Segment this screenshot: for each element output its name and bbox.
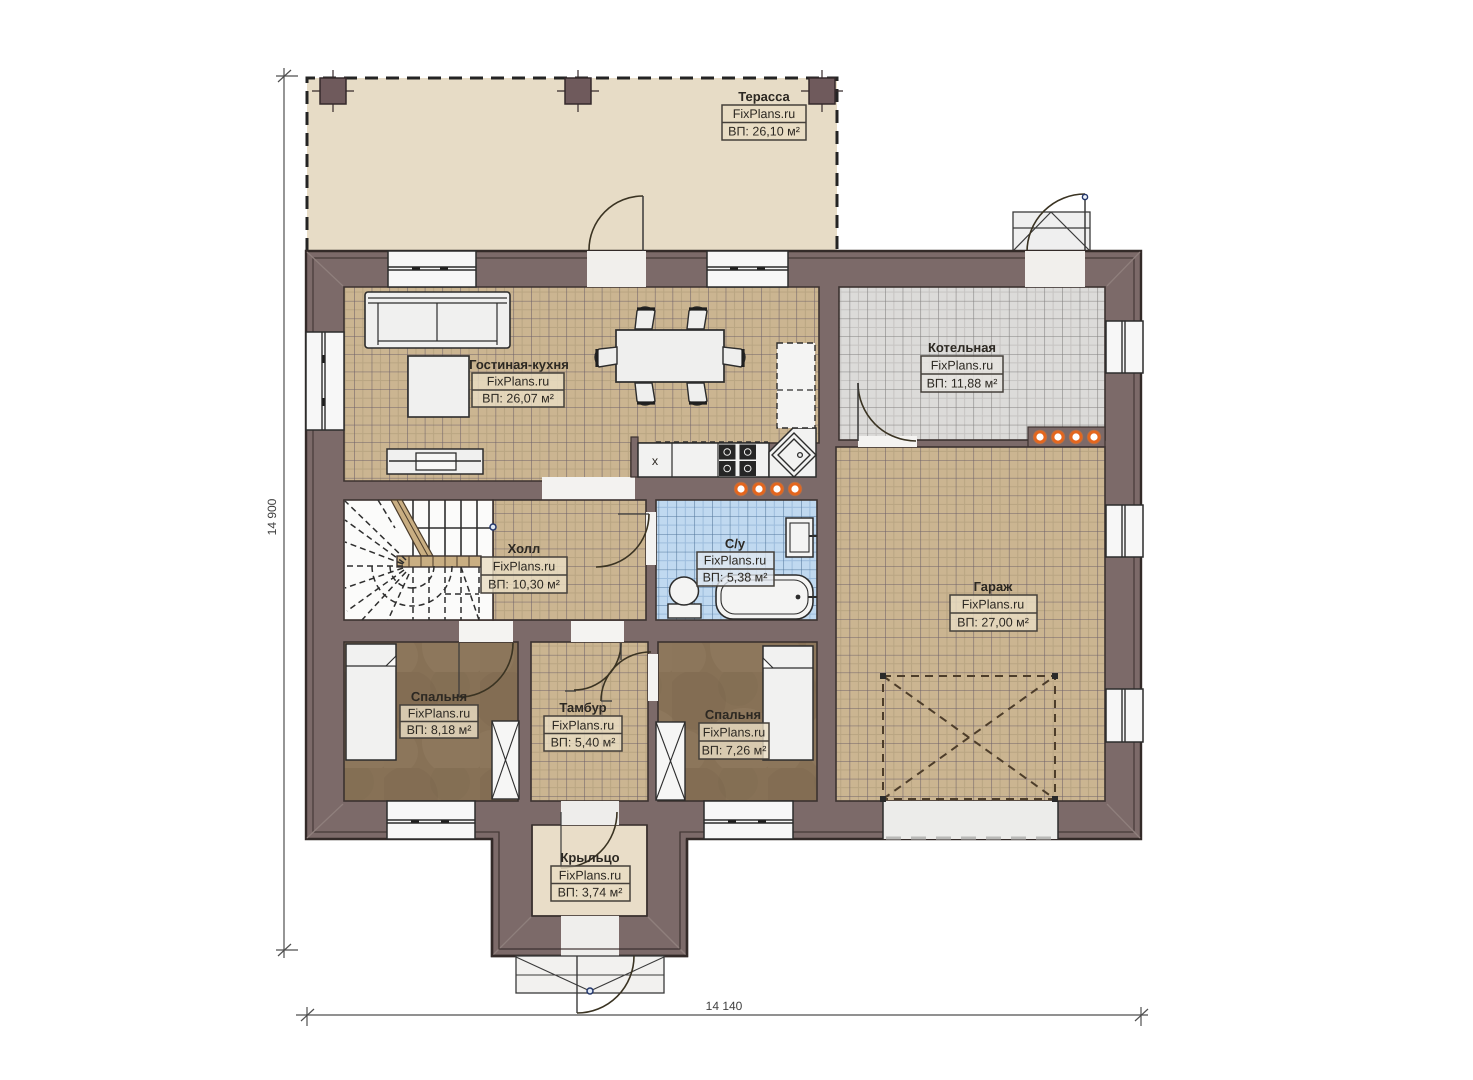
svg-text:С/у: С/у bbox=[725, 536, 746, 551]
svg-text:ВП: 7,26 м²: ВП: 7,26 м² bbox=[702, 744, 767, 758]
svg-text:Спальня: Спальня bbox=[411, 689, 467, 704]
svg-text:ВП: 11,88 м²: ВП: 11,88 м² bbox=[927, 377, 998, 391]
svg-text:ВП: 10,30 м²: ВП: 10,30 м² bbox=[488, 578, 560, 592]
svg-text:FixPlans.ru: FixPlans.ru bbox=[703, 726, 766, 740]
svg-text:ВП: 27,00 м²: ВП: 27,00 м² bbox=[957, 616, 1029, 630]
svg-text:ВП: 3,74 м²: ВП: 3,74 м² bbox=[558, 886, 623, 900]
svg-text:ВП: 26,10 м²: ВП: 26,10 м² bbox=[728, 125, 800, 139]
svg-text:FixPlans.ru: FixPlans.ru bbox=[931, 359, 994, 373]
svg-text:FixPlans.ru: FixPlans.ru bbox=[733, 107, 796, 121]
svg-text:ВП: 8,18 м²: ВП: 8,18 м² bbox=[407, 723, 472, 737]
svg-text:FixPlans.ru: FixPlans.ru bbox=[487, 375, 550, 389]
svg-text:Гараж: Гараж bbox=[974, 579, 1014, 594]
svg-text:Холл: Холл bbox=[508, 541, 541, 556]
svg-text:FixPlans.ru: FixPlans.ru bbox=[962, 598, 1025, 612]
svg-text:ВП: 5,38 м²: ВП: 5,38 м² bbox=[703, 571, 768, 585]
svg-text:ВП: 5,40 м²: ВП: 5,40 м² bbox=[551, 736, 616, 750]
svg-text:FixPlans.ru: FixPlans.ru bbox=[493, 560, 556, 574]
svg-text:Спальня: Спальня bbox=[705, 707, 761, 722]
svg-text:Тамбур: Тамбур bbox=[559, 700, 606, 715]
svg-text:FixPlans.ru: FixPlans.ru bbox=[704, 554, 767, 568]
svg-text:x: x bbox=[652, 454, 659, 468]
svg-text:Гостиная-кухня: Гостиная-кухня bbox=[469, 357, 569, 372]
svg-text:FixPlans.ru: FixPlans.ru bbox=[408, 707, 471, 721]
svg-text:FixPlans.ru: FixPlans.ru bbox=[552, 719, 615, 733]
svg-text:14 140: 14 140 bbox=[706, 999, 743, 1013]
svg-text:ВП: 26,07 м²: ВП: 26,07 м² bbox=[482, 392, 554, 406]
svg-text:14 900: 14 900 bbox=[265, 498, 279, 535]
svg-text:FixPlans.ru: FixPlans.ru bbox=[559, 869, 622, 883]
svg-text:Крыльцо: Крыльцо bbox=[560, 850, 619, 865]
svg-text:Терасса: Терасса bbox=[738, 89, 790, 104]
svg-text:Котельная: Котельная bbox=[928, 340, 996, 355]
